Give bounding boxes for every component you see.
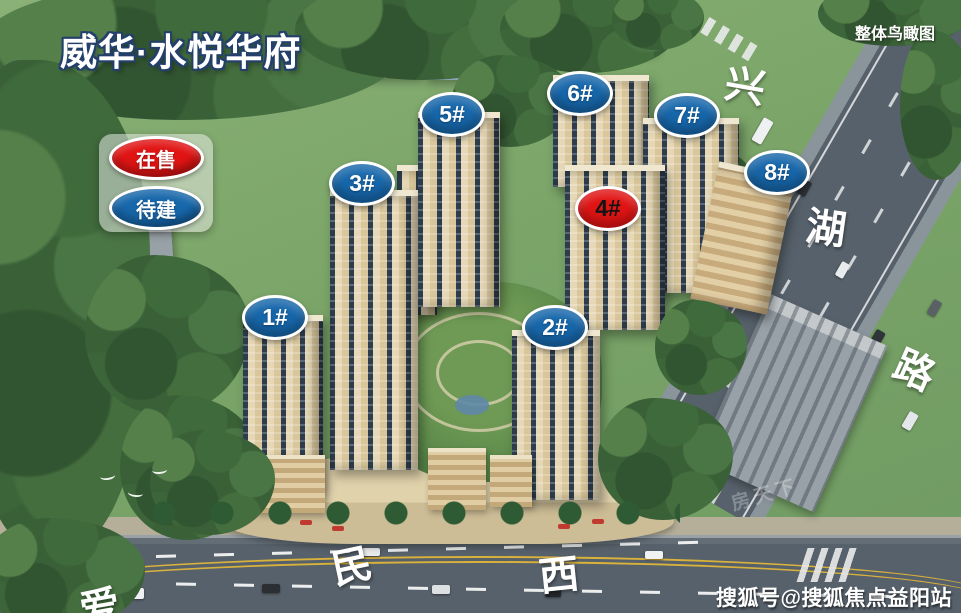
red-awning [558, 524, 570, 529]
aerial-site-view: 威华·水悦华府 整体鸟瞰图 在售待建 1#2#3#4#5#6#7#8# 兴湖路民… [0, 0, 961, 613]
road-label-6: 爱 [77, 585, 123, 613]
legend-item-label: 待建 [136, 194, 176, 223]
car [645, 551, 663, 559]
red-awning [300, 520, 312, 525]
building-marker-label: 6# [567, 82, 593, 105]
crosswalk [796, 548, 861, 582]
pond [455, 395, 489, 415]
sohu-watermark: 搜狐号@搜狐焦点益阳站 [716, 582, 952, 612]
street-trees [150, 499, 680, 531]
building-marker-label: 1# [262, 306, 288, 329]
legend-item-planned: 待建 [109, 186, 204, 230]
corner-caption: 整体鸟瞰图 [855, 20, 935, 44]
project-title: 威华·水悦华府 [60, 22, 301, 76]
legend-item-label: 在售 [136, 144, 176, 173]
building-marker-label: 3# [349, 172, 375, 195]
legend-item-onsale: 在售 [109, 136, 204, 180]
building-marker-label: 8# [764, 161, 790, 184]
road-label-2: 湖 [803, 206, 848, 251]
building-marker-7: 7# [654, 93, 720, 138]
car [901, 411, 919, 432]
car [927, 299, 943, 317]
red-awning [592, 519, 604, 524]
building-marker-1: 1# [242, 295, 308, 340]
building-marker-5: 5# [419, 92, 485, 137]
building-marker-2: 2# [522, 305, 588, 350]
road-label-1: 兴 [722, 64, 768, 110]
tower-3 [330, 190, 418, 470]
road-label-3: 路 [888, 345, 941, 398]
car [432, 585, 450, 594]
building-marker-3: 3# [329, 161, 395, 206]
tower-5 [418, 112, 500, 307]
building-marker-4: 4# [575, 186, 641, 231]
legend-panel: 在售待建 [99, 134, 213, 232]
building-marker-6: 6# [547, 71, 613, 116]
building-marker-label: 2# [542, 316, 568, 339]
building-marker-label: 4# [595, 197, 621, 220]
red-awning [332, 526, 344, 531]
road-label-5: 西 [537, 554, 581, 598]
road-label-4: 民 [328, 543, 375, 590]
building-marker-label: 5# [439, 103, 465, 126]
bus [751, 117, 774, 145]
car [262, 584, 280, 593]
building-marker-8: 8# [744, 150, 810, 195]
building-marker-label: 7# [674, 104, 700, 127]
tree-cluster [85, 255, 250, 415]
